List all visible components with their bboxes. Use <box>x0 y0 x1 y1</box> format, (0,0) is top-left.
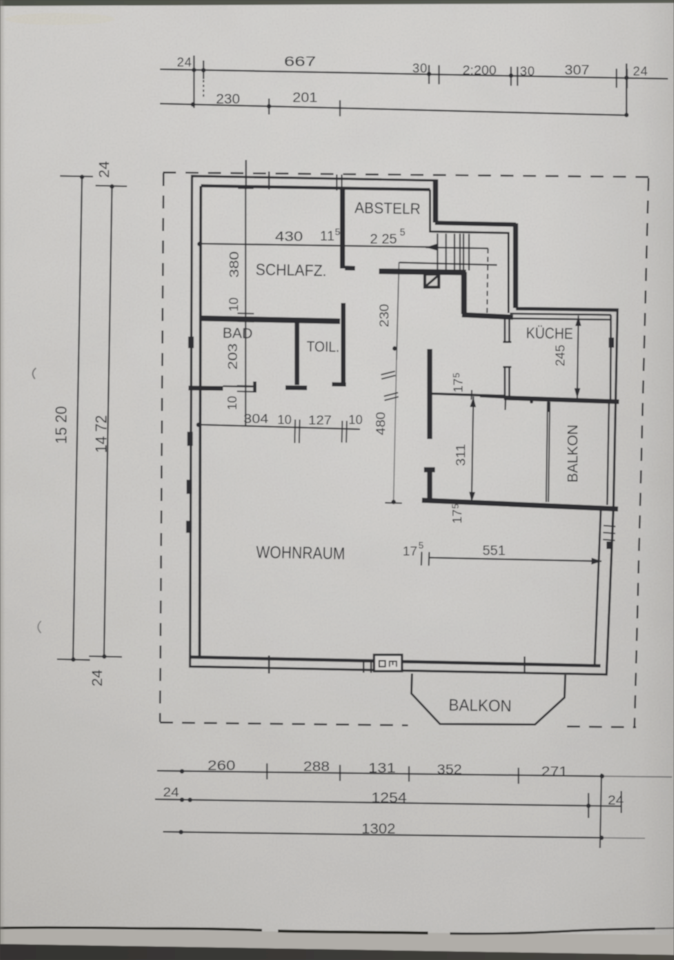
svg-text:480: 480 <box>373 412 388 436</box>
svg-text:230: 230 <box>376 304 391 328</box>
svg-text:2:200: 2:200 <box>463 63 497 78</box>
svg-text:10: 10 <box>225 396 240 410</box>
svg-text:24: 24 <box>163 784 179 799</box>
svg-text:30: 30 <box>412 60 427 75</box>
svg-text:30: 30 <box>520 64 535 79</box>
svg-text:203: 203 <box>225 343 240 370</box>
svg-text:KÜCHE: KÜCHE <box>526 324 573 343</box>
svg-text:271: 271 <box>541 764 568 779</box>
svg-text:5: 5 <box>418 541 423 552</box>
svg-text:667: 667 <box>284 54 316 69</box>
svg-text:17: 17 <box>449 509 464 523</box>
svg-text:14 72: 14 72 <box>94 415 111 453</box>
svg-text:352: 352 <box>437 762 462 777</box>
svg-text:24: 24 <box>177 55 192 70</box>
svg-text:311: 311 <box>453 444 468 466</box>
svg-text:10: 10 <box>348 412 362 427</box>
svg-text:TOIL.: TOIL. <box>306 339 339 356</box>
svg-text:260: 260 <box>208 758 236 773</box>
svg-text:BAD: BAD <box>222 326 252 343</box>
svg-text:17: 17 <box>403 543 418 558</box>
svg-text:230: 230 <box>216 91 240 106</box>
svg-text:380: 380 <box>227 251 242 278</box>
svg-text:10: 10 <box>277 412 291 427</box>
svg-text:430: 430 <box>275 229 303 244</box>
svg-text:24: 24 <box>608 792 624 807</box>
svg-text:24: 24 <box>90 670 106 687</box>
svg-text:307: 307 <box>565 62 590 77</box>
svg-text:288: 288 <box>303 759 330 774</box>
svg-text:15 20: 15 20 <box>54 406 71 444</box>
svg-text:BALKON: BALKON <box>448 696 511 715</box>
svg-text:1302: 1302 <box>362 822 396 838</box>
svg-text:SCHLAFZ.: SCHLAFZ. <box>255 262 326 280</box>
svg-text:1254: 1254 <box>371 791 407 807</box>
svg-text:10: 10 <box>226 297 241 311</box>
svg-text:BALKON: BALKON <box>565 425 582 483</box>
svg-text:5: 5 <box>450 504 460 509</box>
svg-text:11: 11 <box>320 229 335 244</box>
svg-text:5: 5 <box>335 227 340 238</box>
svg-text:2 25: 2 25 <box>370 231 397 246</box>
svg-text:24: 24 <box>633 63 648 78</box>
svg-text:17: 17 <box>450 378 465 392</box>
svg-text:ABSTELR: ABSTELR <box>354 200 420 218</box>
svg-text:127: 127 <box>308 413 332 428</box>
svg-text:304: 304 <box>244 411 269 426</box>
svg-text:131: 131 <box>368 761 396 776</box>
svg-text:551: 551 <box>483 543 506 558</box>
svg-text:WOHNRAUM: WOHNRAUM <box>256 543 345 564</box>
svg-text:201: 201 <box>293 90 318 105</box>
svg-text:245: 245 <box>552 345 567 367</box>
svg-text:5: 5 <box>400 228 406 239</box>
svg-text:5: 5 <box>451 373 461 378</box>
svg-text:24: 24 <box>97 161 113 178</box>
